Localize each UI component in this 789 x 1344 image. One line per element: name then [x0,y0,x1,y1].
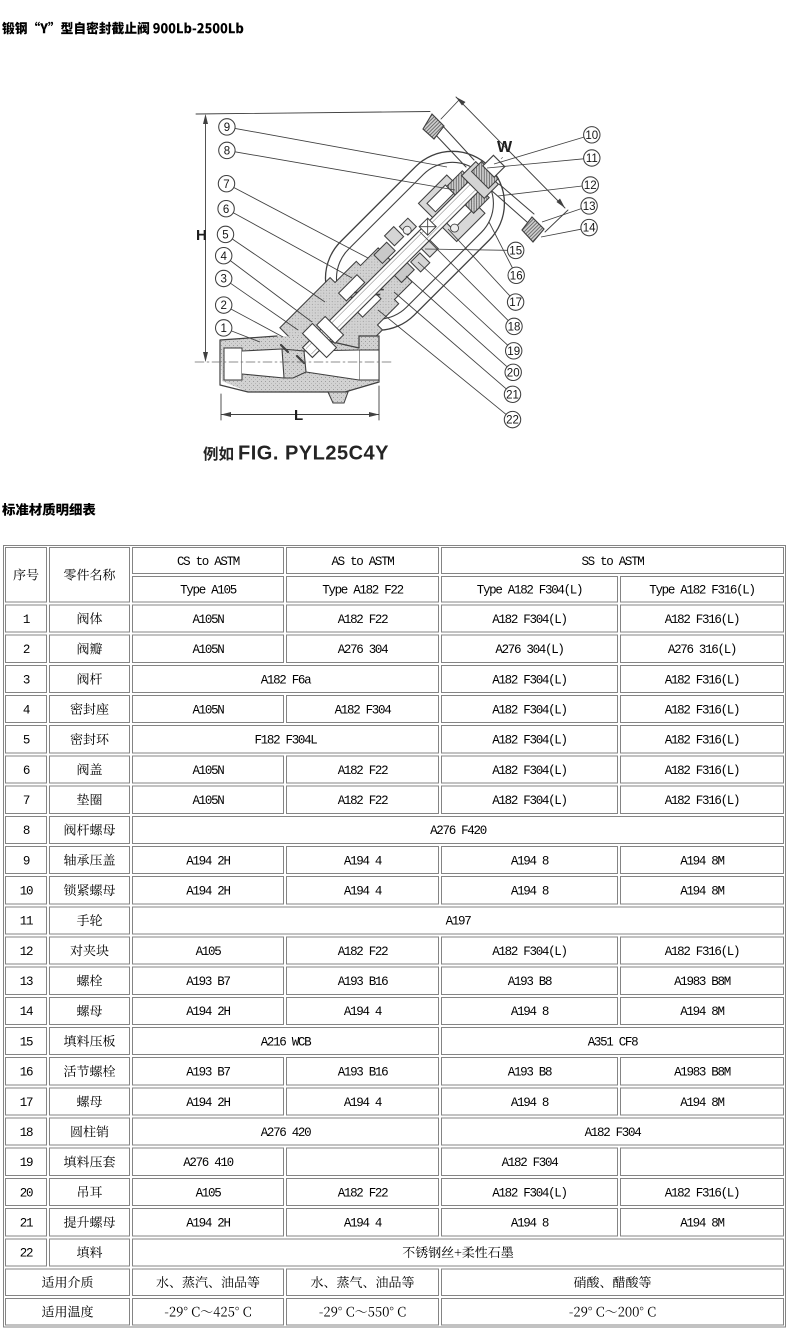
svg-text:16: 16 [20,1066,33,1080]
svg-text:1: 1 [220,323,226,335]
svg-text:A182 F316(L): A182 F316(L) [665,794,739,808]
svg-text:F182 F304L: F182 F304L [254,734,317,748]
svg-text:A182 F304(L): A182 F304(L) [492,794,566,808]
svg-text:L: L [294,407,303,424]
svg-text:A182 F316(L): A182 F316(L) [665,1186,739,1200]
svg-text:A276 420: A276 420 [261,1126,311,1140]
svg-text:A182 F304(L): A182 F304(L) [492,764,566,778]
svg-text:A276 316(L): A276 316(L) [668,643,736,657]
svg-text:A194 8: A194 8 [511,1096,549,1110]
svg-text:A1983 B8M: A1983 B8M [674,1066,731,1080]
svg-text:A194 4: A194 4 [344,1096,382,1110]
svg-text:A105: A105 [196,945,222,959]
svg-text:SS to ASTM: SS to ASTM [581,555,644,569]
svg-text:17: 17 [20,1096,33,1110]
svg-text:21: 21 [20,1217,33,1231]
svg-text:8: 8 [23,824,30,838]
svg-text:A182 F22: A182 F22 [338,1186,388,1200]
svg-text:20: 20 [20,1186,33,1200]
svg-text:5: 5 [222,230,228,242]
svg-text:A182 F304(L): A182 F304(L) [492,673,566,687]
svg-text:A182 F304: A182 F304 [585,1126,642,1140]
svg-text:A182 F316(L): A182 F316(L) [665,764,739,778]
svg-text:A194 8M: A194 8M [680,885,724,899]
svg-text:10: 10 [585,130,598,142]
svg-text:CS to ASTM: CS to ASTM [177,555,240,569]
svg-text:A197: A197 [446,915,472,929]
svg-text:10: 10 [20,885,33,899]
svg-text:A193 B7: A193 B7 [186,1066,230,1080]
svg-text:A193 B8: A193 B8 [508,1066,552,1080]
svg-text:A182 F304: A182 F304 [335,703,392,717]
svg-text:14: 14 [20,1005,33,1019]
svg-text:A194 4: A194 4 [344,854,382,868]
svg-text:9: 9 [23,854,30,868]
svg-text:22: 22 [506,415,519,427]
svg-text:A193 B16: A193 B16 [338,975,388,989]
svg-text:A194 2H: A194 2H [186,1217,230,1231]
svg-text:A276 410: A276 410 [183,1156,233,1170]
svg-text:4: 4 [220,251,227,263]
svg-text:A194 4: A194 4 [344,1005,382,1019]
svg-text:A194 2H: A194 2H [186,1005,230,1019]
svg-text:A194 8M: A194 8M [680,854,724,868]
svg-text:1: 1 [23,613,30,627]
svg-text:6: 6 [23,764,30,778]
svg-text:A182 F316(L): A182 F316(L) [665,703,739,717]
svg-text:13: 13 [20,975,33,989]
svg-text:17: 17 [509,297,522,309]
svg-text:A193 B8: A193 B8 [508,975,552,989]
svg-text:8: 8 [224,146,230,158]
svg-text:FIG. PYL25C4Y: FIG. PYL25C4Y [238,443,389,465]
svg-text:A105N: A105N [192,794,224,808]
svg-text:A194 8M: A194 8M [680,1217,724,1231]
svg-text:18: 18 [20,1126,33,1140]
svg-text:7: 7 [223,179,229,191]
svg-text:15: 15 [509,246,522,258]
svg-text:19: 19 [20,1156,33,1170]
svg-text:Type A182 F316(L): Type A182 F316(L) [649,584,754,598]
svg-text:A182 F22: A182 F22 [338,613,388,627]
svg-text:A194 8: A194 8 [511,854,549,868]
svg-text:A194 4: A194 4 [344,885,382,899]
svg-text:15: 15 [20,1035,33,1049]
svg-text:A194 8: A194 8 [511,1005,549,1019]
svg-text:13: 13 [583,201,596,213]
svg-text:A182 F22: A182 F22 [338,764,388,778]
svg-text:20: 20 [507,367,520,379]
svg-text:A193 B7: A193 B7 [186,975,230,989]
svg-text:A105N: A105N [192,613,224,627]
svg-text:A194 2H: A194 2H [186,1096,230,1110]
svg-text:A182 F304(L): A182 F304(L) [492,1186,566,1200]
svg-text:A216 WCB: A216 WCB [261,1035,312,1049]
svg-text:5: 5 [23,734,30,748]
svg-text:7: 7 [23,794,30,808]
svg-text:2: 2 [220,300,226,312]
svg-text:16: 16 [510,270,523,282]
svg-text:A194 8: A194 8 [511,1217,549,1231]
svg-text:A182 F316(L): A182 F316(L) [665,613,739,627]
svg-text:A276 F420: A276 F420 [430,824,487,838]
svg-text:A182 F316(L): A182 F316(L) [665,945,739,959]
svg-text:A276 304(L): A276 304(L) [495,643,563,657]
svg-text:A182 F22: A182 F22 [338,945,388,959]
svg-text:14: 14 [583,223,596,235]
svg-text:A182 F22: A182 F22 [338,794,388,808]
svg-text:A105N: A105N [192,703,224,717]
svg-text:2: 2 [23,643,30,657]
svg-text:4: 4 [23,703,30,717]
svg-text:Type A182 F22: Type A182 F22 [322,584,403,598]
svg-text:Type A182 F304(L): Type A182 F304(L) [477,584,582,598]
svg-text:A182 F304(L): A182 F304(L) [492,734,566,748]
svg-text:W: W [497,139,513,156]
svg-text:3: 3 [220,274,226,286]
svg-text:A105: A105 [196,1186,222,1200]
svg-text:H: H [196,227,207,244]
svg-text:11: 11 [586,153,598,165]
svg-text:A276 304: A276 304 [338,643,388,657]
svg-text:A194 8: A194 8 [511,885,549,899]
svg-text:A182 F304(L): A182 F304(L) [492,613,566,627]
svg-text:12: 12 [20,945,33,959]
svg-text:AS to ASTM: AS to ASTM [331,555,394,569]
svg-text:19: 19 [507,346,520,358]
svg-text:11: 11 [20,915,33,929]
svg-text:A194 8M: A194 8M [680,1096,724,1110]
svg-text:21: 21 [506,389,519,401]
svg-text:A194 2H: A194 2H [186,854,230,868]
svg-text:A193 B16: A193 B16 [338,1066,388,1080]
svg-text:A182 F304: A182 F304 [502,1156,559,1170]
svg-text:3: 3 [23,673,30,687]
svg-text:A182 F304(L): A182 F304(L) [492,945,566,959]
svg-text:A351 CF8: A351 CF8 [588,1035,638,1049]
svg-text:18: 18 [508,322,521,334]
svg-text:A1983 B8M: A1983 B8M [674,975,731,989]
svg-text:6: 6 [223,204,229,216]
svg-text:12: 12 [584,180,597,192]
svg-text:A105N: A105N [192,764,224,778]
svg-text:22: 22 [20,1247,33,1261]
svg-text:A194 4: A194 4 [344,1217,382,1231]
svg-text:A182 F6a: A182 F6a [261,673,312,687]
svg-text:A182 F316(L): A182 F316(L) [665,673,739,687]
svg-text:A194 2H: A194 2H [186,885,230,899]
svg-text:A182 F304(L): A182 F304(L) [492,703,566,717]
svg-text:A194 8M: A194 8M [680,1005,724,1019]
svg-text:A105N: A105N [192,643,224,657]
svg-text:9: 9 [224,122,230,134]
svg-text:A182 F316(L): A182 F316(L) [665,734,739,748]
svg-text:Type A105: Type A105 [180,584,237,598]
